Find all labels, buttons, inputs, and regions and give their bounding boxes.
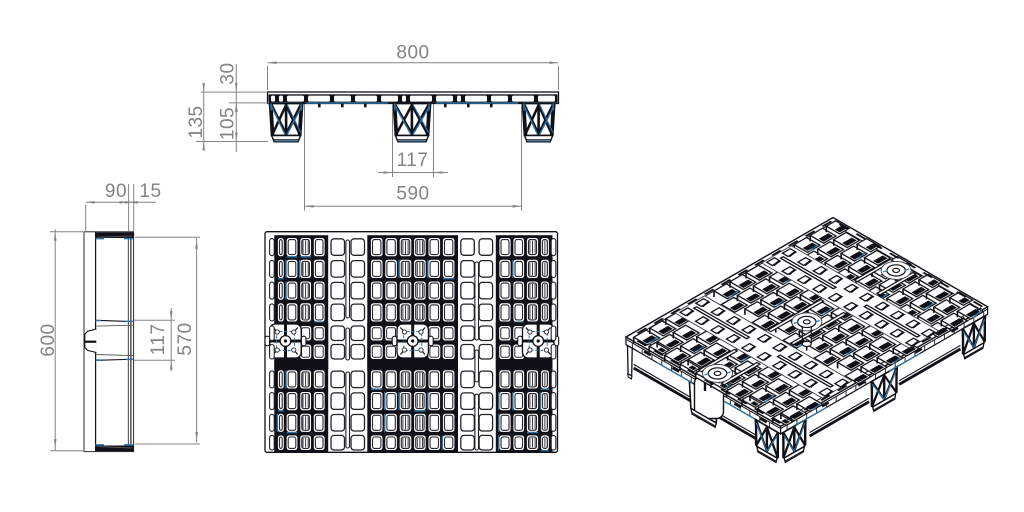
svg-text:590: 590	[396, 184, 429, 205]
svg-text:800: 800	[396, 43, 429, 64]
svg-text:15: 15	[139, 181, 161, 202]
svg-text:135: 135	[186, 105, 207, 138]
svg-text:117: 117	[148, 324, 169, 356]
svg-text:90: 90	[105, 181, 127, 202]
svg-text:117: 117	[397, 150, 429, 171]
svg-text:570: 570	[175, 322, 196, 355]
svg-text:600: 600	[38, 323, 59, 356]
svg-text:30: 30	[218, 62, 239, 84]
svg-text:105: 105	[218, 107, 239, 140]
